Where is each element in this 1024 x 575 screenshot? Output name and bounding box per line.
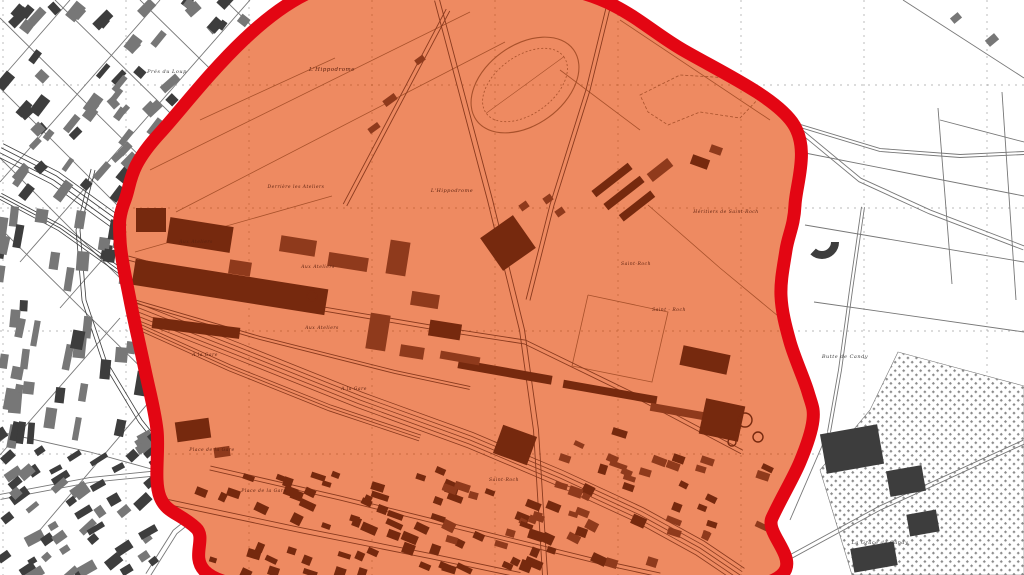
svg-text:Saint-Roch: Saint-Roch <box>621 261 651 267</box>
svg-text:L'Hippodrome: L'Hippodrome <box>430 188 473 194</box>
svg-text:Prés du Loup: Prés du Loup <box>146 68 187 75</box>
svg-text:Héritiers de Saint-Roch: Héritiers de Saint-Roch <box>692 208 758 215</box>
svg-text:Saint-Roch: Saint-Roch <box>489 477 519 483</box>
svg-text:Aux Ateliers: Aux Ateliers <box>304 325 339 331</box>
map-viewport: Prés du LoupButte de CandyLa Grâce de Ca… <box>0 0 1024 575</box>
svg-text:Place de la Gare: Place de la Gare <box>188 447 234 453</box>
svg-text:Aux Ateliers: Aux Ateliers <box>178 239 213 245</box>
svg-text:Aux Ateliers: Aux Ateliers <box>300 264 335 270</box>
cadastral-map: Prés du LoupButte de CandyLa Grâce de Ca… <box>0 0 1024 575</box>
svg-text:Place de la Gare: Place de la Gare <box>240 488 286 494</box>
svg-text:A la Gare: A la Gare <box>340 386 367 392</box>
svg-text:A la Gare: A la Gare <box>191 352 218 358</box>
svg-text:Butte de Candy: Butte de Candy <box>821 354 868 360</box>
svg-text:Derrière les Ateliers: Derrière les Ateliers <box>267 183 325 190</box>
svg-text:Saint - Roch: Saint - Roch <box>652 307 686 313</box>
svg-text:La Grâce de Candy: La Grâce de Candy <box>851 539 909 546</box>
svg-text:L'Hippodrome: L'Hippodrome <box>308 67 355 73</box>
